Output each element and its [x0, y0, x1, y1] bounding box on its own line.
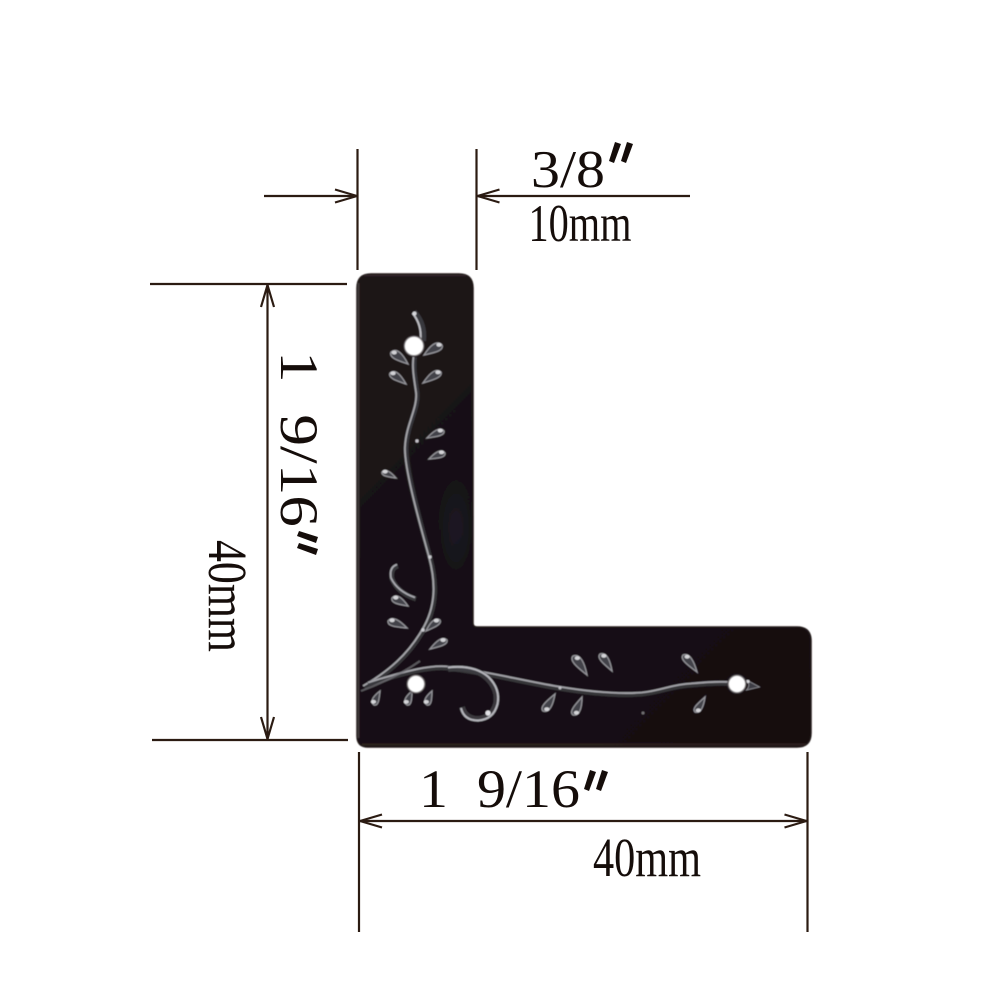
svg-text:1 9/16: 1 9/16: [419, 759, 580, 819]
svg-text:40mm: 40mm: [593, 827, 701, 888]
svg-text:3/8: 3/8: [531, 141, 605, 199]
svg-text:10mm: 10mm: [529, 195, 632, 253]
svg-text:1 9/16: 1 9/16: [269, 351, 329, 527]
svg-text:40mm: 40mm: [197, 540, 258, 652]
